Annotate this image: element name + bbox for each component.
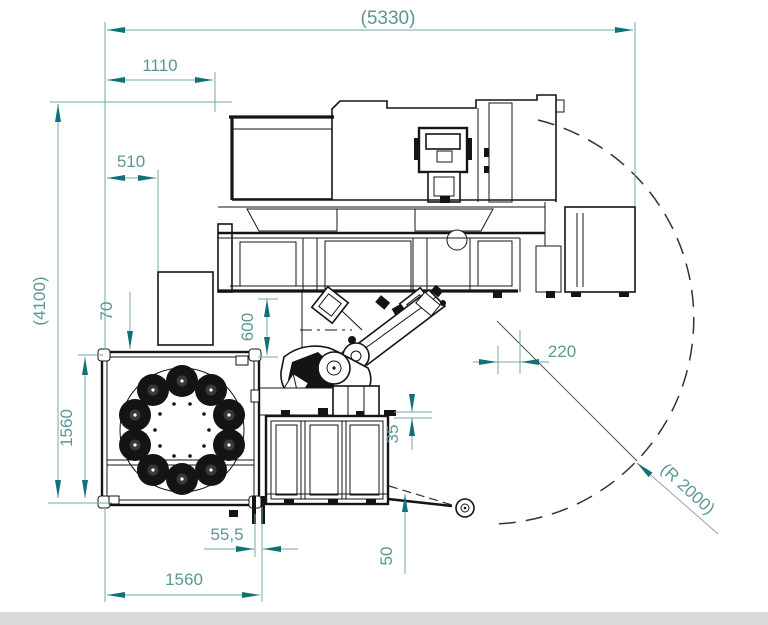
guide-rail-wheel [388,499,474,517]
dim-overall-width-label: (5330) [361,8,416,29]
dimension-overall-depth: (4100) [30,104,58,498]
dimension-gap-50: 50 [377,494,405,574]
dimension-pallet-depth: 1560 [57,357,85,498]
electrical-cabinet [565,207,635,297]
footer-strip [0,612,768,625]
technical-drawing-canvas: (5330) 1110 510 (4100) 70 600 1560 220 3… [0,0,768,625]
dimension-swing-radius: (R 2000) [637,460,719,534]
dim-35-label: 35 [383,425,402,444]
dim-600-label: 600 [238,313,257,341]
machine-layout-drawing: (5330) 1110 510 (4100) 70 600 1560 220 3… [0,0,768,625]
dimension-gap-55-5: 55,5 [204,525,298,549]
dim-1110-label: 1110 [142,56,177,75]
dimension-gap-600: 600 [238,299,267,355]
dimension-offset-510: 510 [107,152,156,178]
tool-cart [266,408,396,505]
pallet-carousel [98,349,265,524]
dimension-offset-1110: 1110 [107,56,213,80]
dim-510-label: 510 [117,152,145,171]
side-box [158,272,213,345]
dim-1560-left-label: 1560 [57,409,76,447]
dim-50-label: 50 [377,547,396,566]
machine-body [218,95,564,298]
dimension-overall-width: (5330) [107,8,633,30]
dimension-pallet-width: 1560 [107,570,260,595]
dim-overall-depth-label: (4100) [30,276,49,325]
dimension-offset-220: 220 [473,342,576,362]
dim-70-label: 70 [97,302,116,321]
robot-loader [281,285,446,402]
dim-55-5-label: 55,5 [210,525,243,544]
dim-220-label: 220 [548,342,576,361]
dimension-gap-70: 70 [97,292,130,349]
dim-1560-bottom-label: 1560 [165,570,203,589]
